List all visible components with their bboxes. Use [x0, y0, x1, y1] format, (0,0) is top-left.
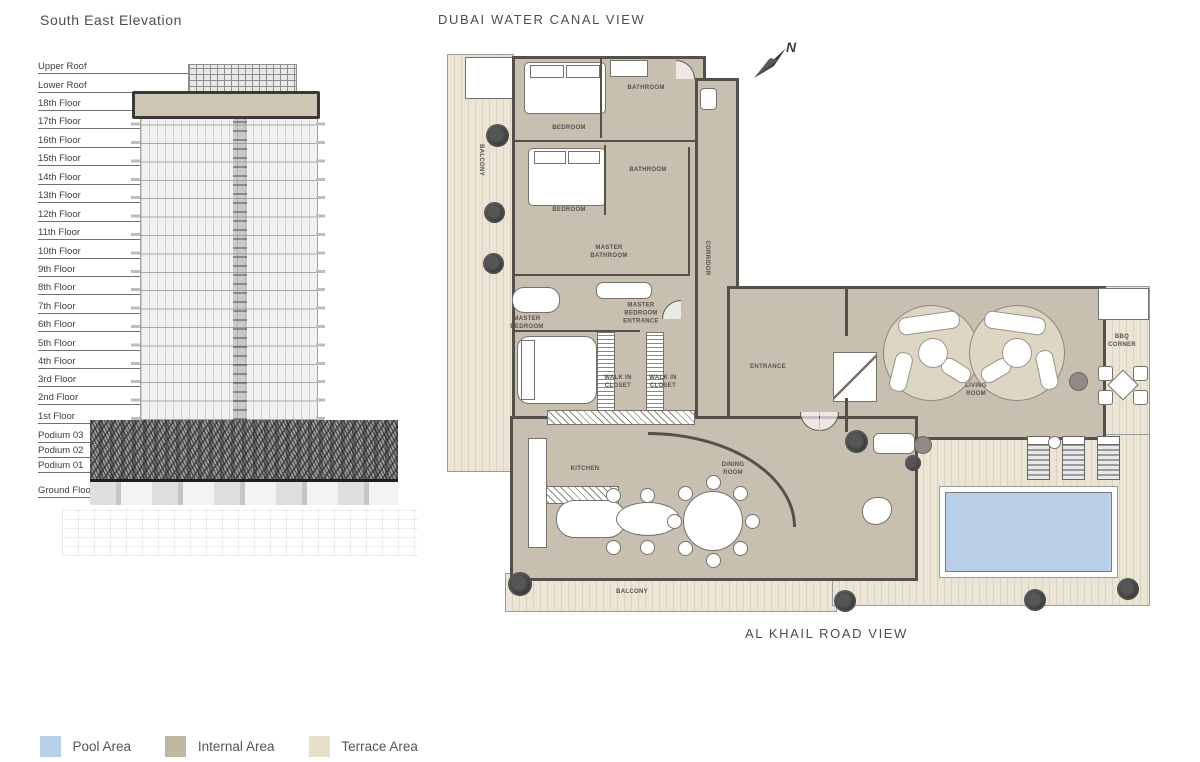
- floor-row-8th-floor: 8th Floor: [38, 282, 142, 295]
- floor-row-6th-floor: 6th Floor: [38, 319, 142, 332]
- island-chair: [606, 488, 621, 503]
- planter: [914, 436, 932, 454]
- room-label-living-room: LIVING ROOM: [961, 383, 991, 399]
- wall-bed1-bath1: [600, 58, 602, 138]
- sofa: [887, 350, 914, 393]
- duct-box: [833, 352, 877, 402]
- bbq-chair: [1098, 390, 1113, 405]
- elevation-core: [233, 113, 247, 420]
- tree: [834, 590, 856, 612]
- bbq-counter: [1098, 288, 1149, 320]
- island-chair: [640, 540, 655, 555]
- side-table: [1048, 436, 1061, 449]
- plan-top-view-label: DUBAI WATER CANAL VIEW: [438, 12, 645, 27]
- floor-row-16th-floor: 16th Floor: [38, 135, 142, 148]
- room-label-balcony-left: BALCONY: [476, 144, 484, 176]
- floor-label: 6th Floor: [38, 319, 76, 330]
- floor-row-3rd-floor: 3rd Floor: [38, 374, 142, 387]
- vanity-bathroom1: [610, 60, 648, 77]
- bbq-chair: [1133, 390, 1148, 405]
- pillow: [530, 65, 564, 78]
- floor-label: Podium 02: [38, 445, 83, 456]
- dining-chair: [667, 514, 682, 529]
- floor-label: 12th Floor: [38, 209, 81, 220]
- legend-label-terrace: Terrace Area: [341, 739, 418, 754]
- sofa: [983, 310, 1047, 336]
- plan-bottom-view-label: AL KHAIL ROAD VIEW: [745, 626, 908, 641]
- legend: Pool Area Internal Area Terrace Area: [40, 736, 418, 757]
- vanity-master-bath: [596, 282, 652, 299]
- kitchen-counter: [528, 438, 547, 548]
- architectural-sheet: South East Elevation Upper RoofLower Roo…: [0, 0, 1200, 762]
- coffee-table: [918, 338, 948, 368]
- floor-label: 13th Floor: [38, 190, 81, 201]
- tree: [905, 455, 921, 471]
- wall-corridor-left: [688, 147, 690, 274]
- floor-label: 3rd Floor: [38, 374, 76, 385]
- floor-label: 5th Floor: [38, 338, 76, 349]
- bathtub-master: [512, 287, 560, 313]
- coffee-table: [1002, 338, 1032, 368]
- wall-bathroom-divider: [512, 274, 690, 276]
- wall-bedroom-divider: [512, 140, 698, 142]
- elevation-paving: [62, 508, 418, 556]
- floor-label: 10th Floor: [38, 246, 81, 257]
- elevation-ground-floor: [90, 482, 398, 505]
- elevation-upper-roof: [188, 64, 297, 94]
- dining-chair: [733, 486, 748, 501]
- tree: [483, 253, 504, 274]
- floor-row-4th-floor: 4th Floor: [38, 356, 142, 369]
- elevation-tower: [140, 113, 318, 420]
- room-label-kitchen: KITCHEN: [571, 466, 600, 474]
- floor-row-upper-roof: Upper Roof: [38, 61, 188, 74]
- room-label-master-bedroom-entrance: MASTER BEDROOM ENTRANCE: [619, 302, 663, 325]
- floor-row-5th-floor: 5th Floor: [38, 338, 142, 351]
- room-label-balcony-bottom: BALCONY: [616, 589, 648, 597]
- room-label-dining-room: DINING ROOM: [718, 462, 748, 478]
- north-letter: N: [786, 39, 797, 55]
- swimming-pool: [945, 492, 1112, 572]
- floor-row-18th-floor: 18th Floor: [38, 98, 134, 111]
- floor-label: Lower Roof: [38, 80, 87, 91]
- floor-label: 15th Floor: [38, 153, 81, 164]
- wardrobe-run: [547, 410, 695, 425]
- floor-label: Ground Floor: [38, 485, 94, 496]
- floor-label: 16th Floor: [38, 135, 81, 146]
- floor-label: 17th Floor: [38, 116, 81, 127]
- terrace-door-recess: [465, 57, 513, 99]
- room-label-walk-in-closet-2: WALK IN CLOSET: [649, 375, 677, 391]
- tree: [1117, 578, 1139, 600]
- floor-label: 9th Floor: [38, 264, 76, 275]
- island-chair: [640, 488, 655, 503]
- floor-label: Upper Roof: [38, 61, 87, 72]
- legend-swatch-internal: [165, 736, 186, 757]
- dining-chair: [678, 486, 693, 501]
- sun-lounger: [1097, 444, 1120, 480]
- floor-row-lower-roof: Lower Roof: [38, 80, 134, 93]
- dining-chair: [678, 541, 693, 556]
- floor-row-11th-floor: 11th Floor: [38, 227, 142, 240]
- floor-row-podium-03: Podium 03: [38, 430, 90, 443]
- tree: [1024, 589, 1046, 611]
- floor-row-13th-floor: 13th Floor: [38, 190, 142, 203]
- floor-row-15th-floor: 15th Floor: [38, 153, 142, 166]
- room-label-bathroom1: BATHROOM: [627, 85, 664, 93]
- bbq-chair: [1133, 366, 1148, 381]
- sun-lounger: [1062, 444, 1085, 480]
- room-label-bbq-corner: BBQ CORNER: [1108, 334, 1136, 350]
- wall-bed2-bath2: [604, 145, 606, 215]
- floor-row-14th-floor: 14th Floor: [38, 172, 142, 185]
- elevation-balcony-tabs-left: [131, 113, 140, 420]
- floor-label: 18th Floor: [38, 98, 81, 109]
- legend-label-pool: Pool Area: [72, 739, 131, 754]
- wall-entrance-living-bottom: [845, 398, 848, 432]
- floor-row-12th-floor: 12th Floor: [38, 209, 142, 222]
- room-label-corridor: CORRIDOR: [702, 240, 710, 275]
- pillow: [568, 151, 600, 164]
- floor-row-podium-02: Podium 02: [38, 445, 90, 458]
- elevation-title: South East Elevation: [40, 12, 182, 28]
- tree: [486, 124, 509, 147]
- bbq-chair: [1098, 366, 1113, 381]
- floor-label: 7th Floor: [38, 301, 76, 312]
- floor-label: 1st Floor: [38, 411, 75, 422]
- floor-label: 14th Floor: [38, 172, 81, 183]
- room-label-bathroom2: BATHROOM: [629, 167, 666, 175]
- tree: [484, 202, 505, 223]
- outdoor-sofa: [873, 433, 915, 454]
- island-chair: [606, 540, 621, 555]
- room-label-master-bedroom: MASTER BEDROOM: [508, 316, 546, 332]
- wardrobe-closet1: [597, 332, 615, 412]
- floor-row-7th-floor: 7th Floor: [38, 301, 142, 314]
- floor-label: Podium 01: [38, 460, 83, 471]
- north-arrow-icon: N: [748, 34, 800, 86]
- legend-swatch-pool: [40, 736, 61, 757]
- floor-label: 4th Floor: [38, 356, 76, 367]
- floor-row-1st-floor: 1st Floor: [38, 411, 90, 424]
- floor-label: Podium 03: [38, 430, 83, 441]
- wardrobe-closet2: [646, 332, 664, 412]
- elevation-crown-18th: [132, 91, 320, 119]
- elevation-podium: [90, 420, 398, 482]
- floor-row-9th-floor: 9th Floor: [38, 264, 142, 277]
- room-label-walk-in-closet-1: WALK IN CLOSET: [604, 375, 632, 391]
- elevation-balcony-tabs-right: [316, 113, 325, 420]
- headboard-master: [521, 340, 535, 400]
- tree: [508, 572, 532, 596]
- sofa: [1034, 349, 1060, 392]
- room-label-master-bathroom: MASTER BATHROOM: [590, 245, 628, 261]
- dining-chair: [706, 553, 721, 568]
- floor-row-17th-floor: 17th Floor: [38, 116, 142, 129]
- pillow: [566, 65, 600, 78]
- floor-label: 2nd Floor: [38, 392, 78, 403]
- floor-label: 11th Floor: [38, 227, 80, 238]
- tree: [845, 430, 868, 453]
- room-label-entrance: ENTRANCE: [750, 364, 786, 372]
- dining-chair: [745, 514, 760, 529]
- floor-row-podium-01: Podium 01: [38, 460, 90, 473]
- room-label-bedroom1: BEDROOM: [552, 125, 585, 133]
- room-label-bedroom2: BEDROOM: [552, 207, 585, 215]
- wall-entrance-living-top: [845, 288, 848, 336]
- wc-fixture: [700, 88, 717, 110]
- sofa: [897, 310, 961, 336]
- pillow: [534, 151, 566, 164]
- sun-lounger: [1027, 444, 1050, 480]
- floor-row-2nd-floor: 2nd Floor: [38, 392, 142, 405]
- floor-label: 8th Floor: [38, 282, 76, 293]
- floor-row-10th-floor: 10th Floor: [38, 246, 142, 259]
- legend-swatch-terrace: [309, 736, 330, 757]
- planter: [1069, 372, 1088, 391]
- legend-label-internal: Internal Area: [198, 739, 275, 754]
